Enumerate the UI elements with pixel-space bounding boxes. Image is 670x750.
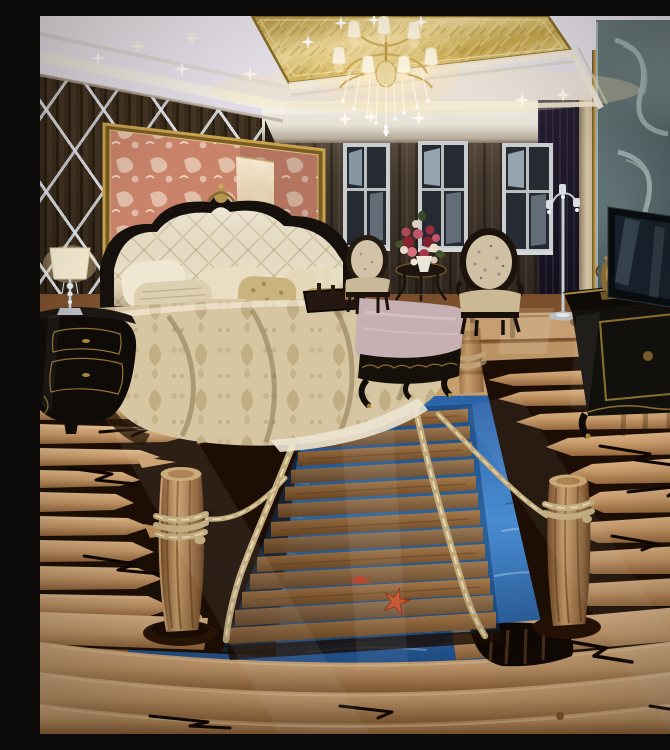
table-lamp	[43, 245, 97, 315]
cabinet-medallion	[643, 351, 653, 361]
candle	[315, 266, 323, 283]
table-legs	[396, 274, 446, 302]
scene-art	[40, 16, 670, 734]
log-knot	[556, 712, 564, 720]
ceiling-group	[40, 16, 640, 137]
headboard-crest	[214, 189, 228, 203]
drawer-handle	[82, 339, 90, 343]
window-2	[418, 141, 468, 252]
window-1	[343, 143, 390, 251]
lamp-base	[57, 308, 83, 315]
open-sash	[508, 150, 524, 188]
open-sash	[349, 149, 362, 186]
chair-back-fabric	[466, 235, 512, 289]
drawer-handle	[82, 373, 90, 377]
chair-back-fabric	[351, 240, 383, 280]
crystal-chandelier	[312, 16, 460, 137]
chandelier-drop	[383, 127, 389, 137]
open-sash	[424, 148, 440, 186]
flat-tv	[608, 207, 670, 310]
bedroom-photo: Photograph of an ornate bedroom: gold co…	[40, 16, 670, 734]
lamp-shade	[50, 248, 90, 279]
candle	[329, 268, 337, 285]
